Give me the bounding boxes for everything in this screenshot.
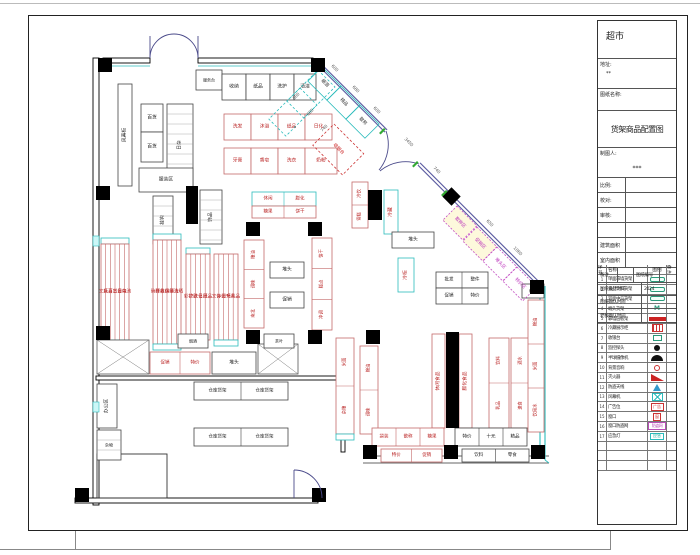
shelf-label: 特价 xyxy=(191,359,200,366)
legend-row: 13风幕机 xyxy=(598,393,676,403)
shelf-label: 袋装 xyxy=(380,433,389,440)
shelf-label: 奶粉 xyxy=(316,157,326,164)
shelf-label: 饼干 xyxy=(318,248,325,257)
legend-name xyxy=(607,451,648,460)
legend-name: 广告位 xyxy=(607,402,648,411)
shelf-label: 速食 xyxy=(517,401,524,410)
legend-name xyxy=(607,461,648,470)
shelf-label: 南北 xyxy=(250,308,257,317)
legend-no: 7 xyxy=(598,334,607,343)
shelf-label: 精品 xyxy=(511,433,520,440)
shelf-label: 洗衣 xyxy=(287,157,297,164)
shelf-label: 粮油 xyxy=(532,318,539,327)
legend-note xyxy=(667,393,675,402)
legend-no: 13 xyxy=(598,393,607,402)
column xyxy=(308,222,322,236)
legend-name: 半球摄像机 xyxy=(607,353,648,362)
shelf-label: 糖果 xyxy=(428,433,437,440)
shelf-label: 杂物 xyxy=(105,442,113,448)
design-time-label: 图纸设计时间 xyxy=(598,283,642,295)
legend-symbol-icon xyxy=(651,355,663,361)
shelf-block xyxy=(186,248,210,254)
shelf-label: 仓库货架 xyxy=(256,433,274,440)
shelf-label: 风幕柜 xyxy=(121,128,128,143)
column xyxy=(530,280,544,294)
wall-bar xyxy=(368,190,382,220)
shelf-label: 纸品 xyxy=(287,123,297,130)
wall xyxy=(75,498,318,503)
legend-symbol xyxy=(648,451,667,460)
legend-symbol-icon: 窗 xyxy=(653,413,661,421)
legend-no: 14 xyxy=(598,402,607,411)
legend-name: 窗口 xyxy=(607,412,648,421)
legend-symbol xyxy=(648,334,667,343)
owner-time-value xyxy=(642,309,676,322)
title-bottom-row: 老板确认时间 xyxy=(598,309,676,323)
shelf-label: 米面 xyxy=(341,357,348,366)
diagonal-door-opening xyxy=(386,131,419,164)
shelf-label: 堆头 xyxy=(229,359,239,366)
title-block-bottom: 备注图纸编号图纸设计时间2024图纸确认时间老板确认时间 xyxy=(598,268,676,323)
shelf-label: 饮料 xyxy=(474,451,483,458)
legend-symbol-icon xyxy=(652,393,663,401)
column xyxy=(311,58,325,72)
legend-row: 6冷藏展示柜 xyxy=(598,324,676,334)
address-label: 地址: xyxy=(600,61,612,68)
legend-note xyxy=(667,412,675,421)
shelf-label: 休闲 xyxy=(264,195,273,202)
legend-name: 灭火器 xyxy=(607,373,648,382)
confirm-time-value xyxy=(642,296,676,308)
column xyxy=(98,58,112,72)
info-label xyxy=(598,223,626,237)
info-value xyxy=(626,223,676,237)
diagonal-shelf-label: 烟酒 xyxy=(320,77,332,89)
drawing-name-label: 图纸名称: xyxy=(600,91,622,98)
legend-symbol-icon: 广告 xyxy=(651,403,664,411)
legend-note xyxy=(667,402,675,411)
legend-note xyxy=(667,373,675,382)
shelf-label: 仓库货架 xyxy=(256,387,274,394)
column xyxy=(75,488,89,502)
drawing-sheet: 服务台收纳纸品洗护清洁风幕柜百货百货日杂服装区挂钩饰品洗发沐浴纸品日化牙膏香皂洗… xyxy=(0,0,700,555)
info-row: 比例: xyxy=(598,178,676,193)
wall xyxy=(198,58,313,63)
legend-row: 8监控探头 xyxy=(598,344,676,354)
column xyxy=(312,488,326,502)
legend-no xyxy=(598,442,607,451)
project-name-cell: 超市 xyxy=(598,21,676,59)
drafter-label: 制图人: xyxy=(600,150,617,157)
info-label: 审核: xyxy=(598,208,626,222)
info-rows: 比例:校对:审核:建筑面积室内面积 xyxy=(598,178,676,268)
legend-note xyxy=(667,363,675,372)
room-wall xyxy=(97,454,167,498)
door-arc xyxy=(174,34,198,58)
legend-row xyxy=(598,461,676,471)
legend-symbol xyxy=(648,383,667,392)
shelf-block xyxy=(153,234,181,240)
shelf-label: 批发 xyxy=(445,276,454,283)
legend-no: 12 xyxy=(598,383,607,392)
wall-bar xyxy=(186,186,198,224)
legend-symbol: 广告 xyxy=(648,402,667,411)
shelf-block xyxy=(101,238,129,244)
legend-note xyxy=(667,324,675,333)
dim-label: 600 xyxy=(330,63,339,72)
legend-symbol-icon xyxy=(654,365,660,371)
legend-name: 监控探头 xyxy=(607,344,648,353)
shelf-label: 挂钩 xyxy=(159,215,166,225)
legend-no: 6 xyxy=(598,324,607,333)
owner-time-label: 老板确认时间 xyxy=(598,309,642,322)
shelf-label: 促销 xyxy=(161,359,170,366)
info-row xyxy=(598,223,676,238)
legend-symbol xyxy=(648,344,667,353)
drawing-name: 货架商品配置图 xyxy=(598,111,676,147)
shelf-label: 十元 xyxy=(487,433,496,440)
shelf-label: 糕点 xyxy=(318,279,325,288)
shelf-label: 百货 xyxy=(147,143,157,150)
legend-no: 10 xyxy=(598,363,607,372)
shelf-label: 仓库货架 xyxy=(209,387,227,394)
legend-note xyxy=(667,442,675,451)
dim-label: 600 xyxy=(372,105,381,114)
shelf-label: 冷藏 xyxy=(387,207,394,217)
legend-row: 7收银台 xyxy=(598,334,676,344)
note-value xyxy=(618,268,634,282)
shelf-label: 糖果 xyxy=(264,208,273,215)
shelf-label: 酒水 xyxy=(517,356,524,365)
legend-name: 风幕机 xyxy=(607,393,648,402)
shelf-label: 收纳 xyxy=(229,83,239,90)
legend-note xyxy=(667,383,675,392)
confirm-time-label: 图纸确认时间 xyxy=(598,296,642,308)
wall-accent xyxy=(93,402,99,412)
legend-name: 收银台 xyxy=(607,334,648,343)
shelf-label: 杂粮 xyxy=(341,405,348,414)
legend-symbol-icon xyxy=(651,374,664,381)
design-time-value: 2024 xyxy=(642,283,676,295)
sheet-no-label: 图纸编号 xyxy=(634,268,660,282)
shelf-label: 洗护 xyxy=(277,83,287,90)
shelf-label: 洗晒 xyxy=(174,288,183,295)
drawing-name-label-cell: 图纸名称: xyxy=(598,89,676,111)
legend-row: 10背景音响 xyxy=(598,363,676,373)
legend-note xyxy=(667,334,675,343)
shelf-label: 百货 xyxy=(147,114,157,121)
legend-symbol xyxy=(648,353,667,362)
legend-row: 11灭火器 xyxy=(598,373,676,383)
legend-symbol xyxy=(648,461,667,470)
address-cell: 地址: ** xyxy=(598,59,676,89)
shelf-label: 仓库货架 xyxy=(209,433,227,440)
shelf-label: 沐浴 xyxy=(260,123,270,130)
legend-symbol xyxy=(648,324,667,333)
column xyxy=(246,222,260,236)
dim-label: 650 xyxy=(485,218,494,227)
shelf-label: 特价 xyxy=(463,433,472,440)
shelf-label: 饼干 xyxy=(296,208,305,215)
shelf-label: 烟酒 xyxy=(189,338,197,344)
legend-symbol-icon xyxy=(652,324,663,332)
legend-symbol-icon xyxy=(654,345,660,351)
column xyxy=(96,186,110,200)
legend-name: 防盗天线 xyxy=(607,383,648,392)
door-arc xyxy=(150,34,174,58)
shelf-label: 粮油 xyxy=(250,250,257,259)
shelf-label: 堆头 xyxy=(282,266,292,273)
diagonal-shelf-label: 散称 xyxy=(358,115,370,127)
shelf-label: 饮用水 xyxy=(532,403,539,417)
legend-no: 16 xyxy=(598,422,607,431)
column xyxy=(444,445,458,459)
info-value xyxy=(626,178,676,192)
legend-name: 窗口防盗网 xyxy=(607,422,648,431)
legend-symbol-icon: 防盗网 xyxy=(648,422,666,430)
project-name: 超市 xyxy=(598,21,676,42)
shelf-label: 散称 xyxy=(404,433,413,440)
legend-symbol xyxy=(648,373,667,382)
drawing-name-cell: 货架商品配置图 xyxy=(598,111,676,148)
title-block: 超市 地址: ** 图纸名称: 货架商品配置图 制图人: *** 比例:校对:审… xyxy=(597,20,677,525)
legend-symbol-icon xyxy=(653,335,662,341)
info-value xyxy=(626,208,676,222)
shelf-label: 冷饮 xyxy=(356,189,363,198)
column xyxy=(246,330,260,344)
shelf-label: 特价 xyxy=(392,451,401,458)
shelf-label: 促销 xyxy=(445,292,454,299)
shelf-label: 雪糕 xyxy=(356,212,363,221)
legend-name: 应急灯 xyxy=(607,432,648,441)
shelf-label: 膨化 xyxy=(296,195,305,202)
legend-symbol xyxy=(648,393,667,402)
legend-no: 9 xyxy=(598,353,607,362)
shelf-label: 饮料 xyxy=(495,356,502,365)
sheet-no-value xyxy=(660,268,676,282)
wall-bar xyxy=(446,332,459,428)
legend-no xyxy=(598,451,607,460)
info-label: 比例: xyxy=(598,178,626,192)
dim-label: 680 xyxy=(351,84,360,93)
legend-note xyxy=(667,353,675,362)
shelf-label: 零食 xyxy=(508,451,517,458)
info-label: 校对: xyxy=(598,193,626,207)
wall-line xyxy=(545,460,549,463)
legend-symbol-icon xyxy=(653,384,661,391)
info-value xyxy=(626,193,676,207)
column xyxy=(363,445,377,459)
wall xyxy=(96,376,344,380)
shelf-block xyxy=(153,344,181,350)
legend-note xyxy=(667,422,675,431)
legend-name: 背景音响 xyxy=(607,363,648,372)
shelf-label: 调味 xyxy=(250,279,257,288)
shelf-label: 整件 xyxy=(471,276,480,283)
legend-name xyxy=(607,442,648,451)
shelf-label: 牙膏 xyxy=(233,157,243,164)
legend-row xyxy=(598,442,676,452)
shelf-label: 办公区 xyxy=(103,399,110,414)
shelf-label: 香皂 xyxy=(260,157,270,164)
legend-row: 12防盗天线 xyxy=(598,383,676,393)
diagonal-shelf-label: 精品 xyxy=(339,96,351,108)
legend-note xyxy=(667,451,675,460)
title-bottom-row: 图纸设计时间2024 xyxy=(598,283,676,296)
shelf-label: 乳品 xyxy=(495,401,502,410)
shelf-label: 日杂 xyxy=(177,140,183,150)
shelf-label: 特价 xyxy=(471,292,480,299)
title-bottom-row: 图纸确认时间 xyxy=(598,296,676,309)
diagonal-wall xyxy=(319,62,542,285)
legend-name: 冷藏展示柜 xyxy=(607,324,648,333)
legend-symbol: 应急 xyxy=(648,432,667,441)
shelf-label: 洗发 xyxy=(233,123,243,130)
legend-symbol: 窗 xyxy=(648,412,667,421)
column xyxy=(96,326,110,340)
floor-plan-canvas: 服务台收纳纸品洗护清洁风幕柜百货百货日杂服装区挂钩饰品洗发沐浴纸品日化牙膏香皂洗… xyxy=(0,0,700,555)
shelf-label: 堆头 xyxy=(408,236,418,243)
info-row: 建筑面积 xyxy=(598,238,676,253)
shelf-label: 粮油 xyxy=(365,364,372,373)
column xyxy=(366,330,380,344)
shelf-label: 促销 xyxy=(422,451,431,458)
legend-no: 15 xyxy=(598,412,607,421)
legend-symbol-icon: 应急 xyxy=(650,433,664,440)
legend-row xyxy=(598,451,676,461)
shelf-label: 服装区 xyxy=(159,176,174,183)
legend-symbol xyxy=(648,363,667,372)
title-bottom-row: 备注图纸编号 xyxy=(598,268,676,283)
diagonal-wall xyxy=(317,64,540,287)
shelf-block xyxy=(214,340,238,346)
dim-label: 1060 xyxy=(512,245,523,256)
shelf-label: 冲调 xyxy=(318,310,325,319)
shelf-label: 纸品 xyxy=(253,83,263,90)
legend-symbol xyxy=(648,442,667,451)
shelf-label: 电池 xyxy=(122,288,131,295)
legend-row: 14广告位广告 xyxy=(598,402,676,412)
shelf-label: 膨化食品 xyxy=(461,371,468,390)
shelf-label: 休闲食品 xyxy=(434,371,441,390)
legend-row: 9半球摄像机 xyxy=(598,353,676,363)
column xyxy=(308,330,322,344)
info-label: 建筑面积 xyxy=(598,238,626,252)
legend-row: 15窗口窗 xyxy=(598,412,676,422)
legend-symbol: 防盗网 xyxy=(648,422,667,431)
legend-no: 17 xyxy=(598,432,607,441)
shelf-label: 礼品 xyxy=(231,293,240,300)
legend-row: 17应急灯应急 xyxy=(598,432,676,442)
legend-note xyxy=(667,344,675,353)
legend-note xyxy=(667,432,675,441)
dim-label: 740 xyxy=(432,165,441,174)
shelf-label: 饰品 xyxy=(207,212,214,222)
note-label: 备注 xyxy=(598,268,618,282)
info-value xyxy=(626,238,676,252)
legend-row: 16窗口防盗网防盗网 xyxy=(598,422,676,432)
shelf-label: 冷柜 xyxy=(402,270,409,280)
legend-note xyxy=(667,461,675,470)
shelf-label: 调味 xyxy=(365,407,372,416)
drafter-cell: 制图人: *** xyxy=(598,148,676,178)
shelf-label: 促销 xyxy=(282,296,292,303)
info-row: 校对: xyxy=(598,193,676,208)
column xyxy=(531,445,545,459)
legend-no: 8 xyxy=(598,344,607,353)
wall-accent xyxy=(93,236,99,246)
shelf-label: 服务台 xyxy=(203,77,215,83)
shelf-block xyxy=(336,434,354,440)
diagonal-shelf-label: 堆头区 xyxy=(493,256,508,271)
legend-no: 11 xyxy=(598,373,607,382)
shelf-label: 茶叶 xyxy=(275,338,283,344)
legend-no xyxy=(598,461,607,470)
info-row: 审核: xyxy=(598,208,676,223)
shelf-label: 米面 xyxy=(532,361,539,370)
